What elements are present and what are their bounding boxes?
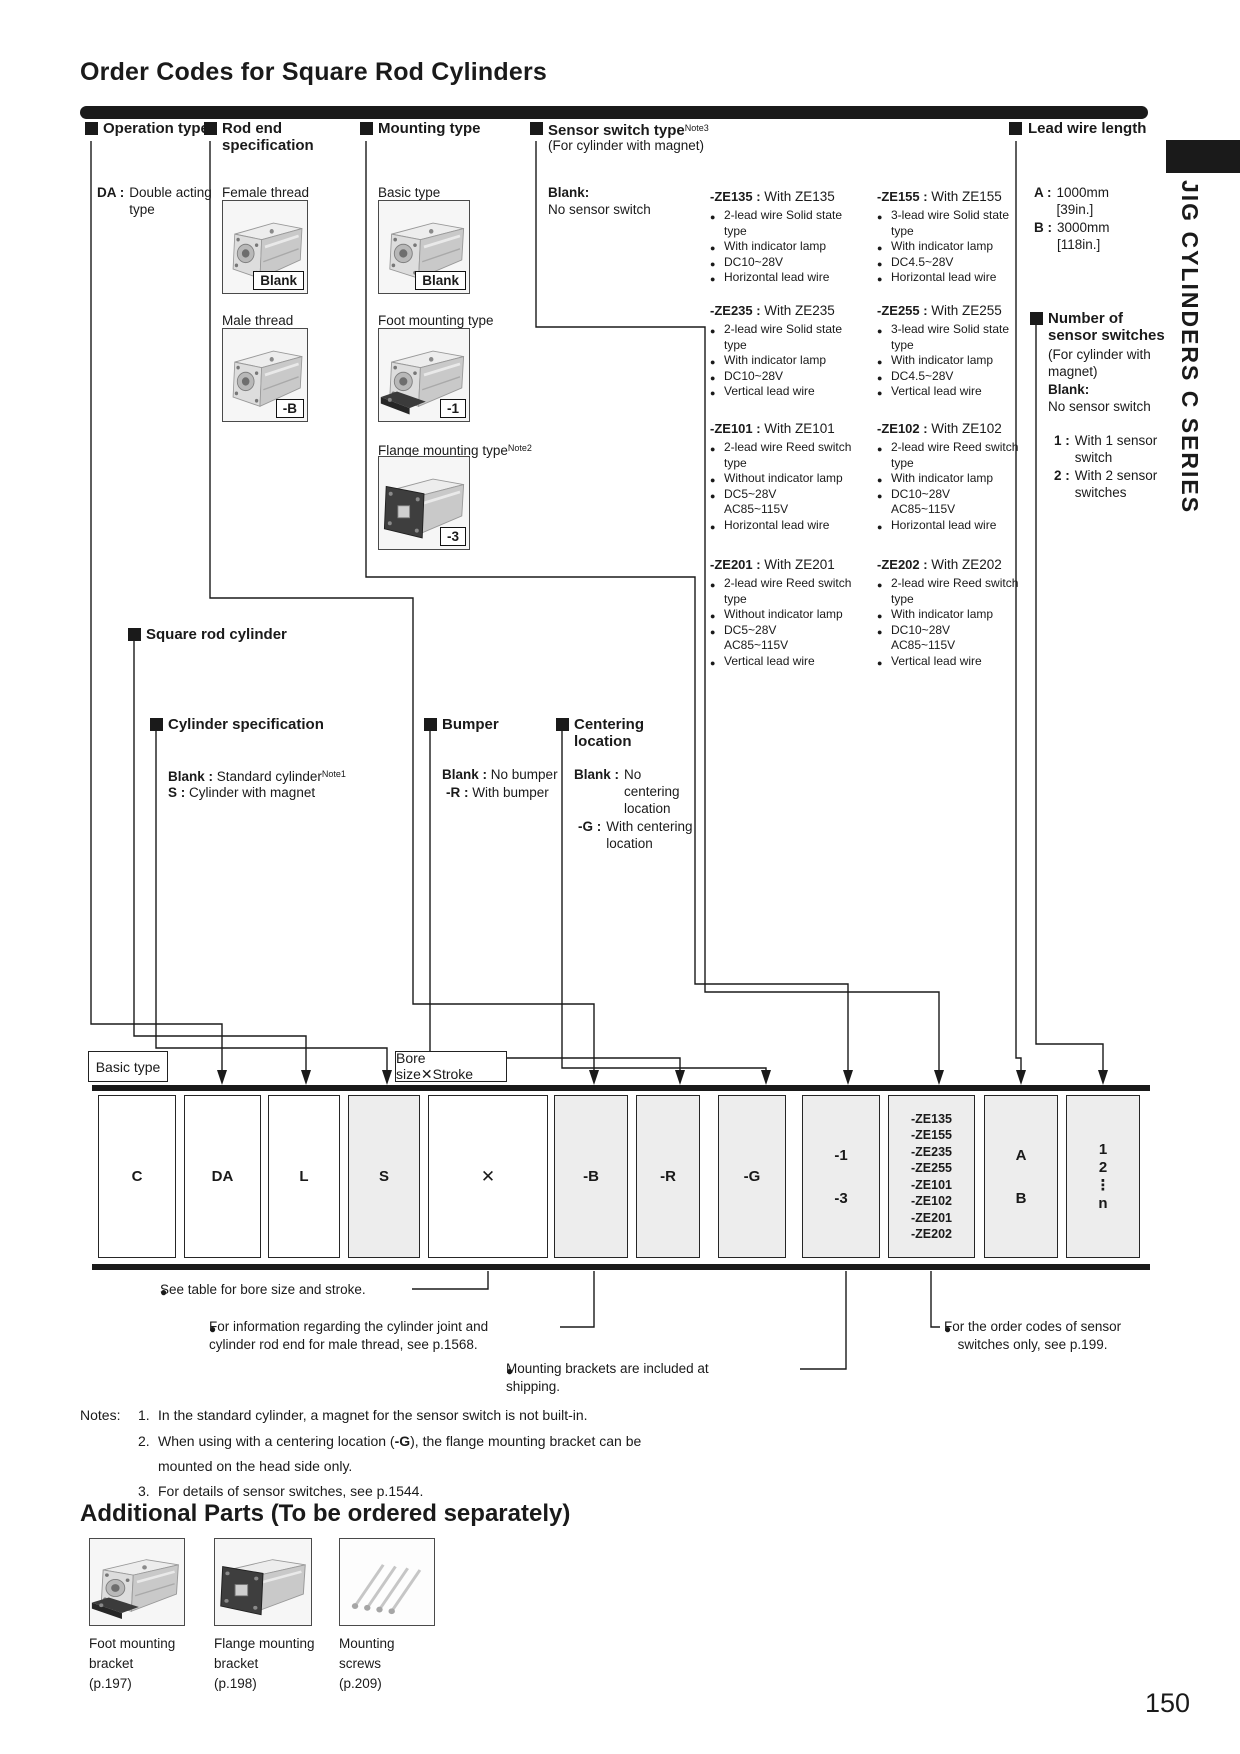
sensor-option-item: ●DC10~28V [710,255,870,271]
bullet-icon: ● [710,210,715,226]
sensor-option-item: ●3-lead wire Solid statetype [877,208,1037,239]
sensor-option-header: -ZE235 : With ZE235 [710,302,870,319]
sensor-option-item: ●With indicator lamp [710,239,870,255]
bullet-icon: ● [877,656,882,672]
sensor-option-item: ●3-lead wire Solid statetype [877,322,1037,353]
section-marker-bumper [424,718,437,731]
sensor-option-item: ●Vertical lead wire [710,654,870,670]
num-switches-option-1: 1 :With 1 sensor switch [1054,432,1167,466]
bumper-blank-option: Blank : No bumper [442,766,558,783]
order-cell-mounting: -1-3 [802,1095,880,1258]
section-title-lead-wire: Lead wire length [1028,120,1158,137]
section-title-mounting: Mounting type [378,120,508,137]
catalog-page: Order Codes for Square Rod Cylinders JIG… [0,0,1240,1754]
notes-line-1: Notes:1.In the standard cylinder, a magn… [80,1406,588,1424]
mounting-flange-note: Note2 [508,443,532,453]
sensor-option-item: ●Vertical lead wire [877,654,1037,670]
callout-sensor-order-codes: ● For the order codes of sensorswitches … [944,1318,1121,1354]
bullet-icon: ● [710,324,715,340]
code-label-female: Blank [253,271,304,290]
section-marker-sensor [530,122,543,135]
sensor-option-item: ●2-lead wire Reed switchtype [877,440,1037,471]
notes-line-2: 2.When using with a centering location (… [138,1432,641,1450]
bullet-icon: ● [710,625,715,641]
sensor-option-header: -ZE101 : With ZE101 [710,420,870,437]
num-switches-option-2: 2 :With 2 sensor switches [1054,467,1167,501]
num-switches-blank-label: Blank: [1048,381,1089,398]
section-marker-mounting [360,122,373,135]
section-title-rod-end: Rod end specification [222,120,332,154]
centering-g-option: -G :With centering location [578,818,694,852]
sensor-option-item: ●DC10~28V [710,369,870,385]
bullet-icon: ● [710,386,715,402]
section-title-bumper: Bumper [442,716,562,733]
sensor-blank-label: Blank: [548,184,589,201]
additional-part-caption: Foot mounting bracket(p.197) [89,1634,194,1694]
callout-mounting-brackets: ● Mounting brackets are included atshipp… [506,1360,709,1396]
notes-line-2b: mounted on the head side only. [158,1457,352,1475]
bullet-icon: ● [160,1283,167,1301]
bumper-r-option: -R : With bumper [446,784,549,801]
page-number: 150 [1100,1688,1190,1719]
sensor-option-ze101: -ZE101 : With ZE101 ●2-lead wire Reed sw… [710,420,870,533]
table-bottom-rule [92,1264,1150,1270]
additional-parts-title: Additional Parts (To be ordered separate… [80,1500,570,1528]
code-label-male: -B [276,399,304,418]
order-cell-square-rod: L [268,1095,340,1258]
photo-basic-mounting: Blank [378,200,470,294]
bullet-icon: ● [710,520,715,536]
sensor-option-header: -ZE135 : With ZE135 [710,188,870,205]
code-label-flange: -3 [440,527,466,546]
sensor-option-item: ●2-lead wire Solid statetype [710,208,870,239]
sensor-option-header: -ZE201 : With ZE201 [710,556,870,573]
sensor-option-header: -ZE255 : With ZE255 [877,302,1037,319]
sensor-option-ze135: -ZE135 : With ZE135 ●2-lead wire Solid s… [710,188,870,286]
operation-option-da: DA : Double acting type [97,184,225,218]
section-marker-centering [556,718,569,731]
lead-wire-option-a: A : 1000mm[39in.] [1034,184,1109,218]
sensor-option-item: ●Horizontal lead wire [877,518,1037,534]
bore-stroke-label: Bore size✕Stroke [395,1051,507,1082]
sensor-option-item: ●DC10~28VAC85~115V [877,623,1037,654]
sensor-option-ze102: -ZE102 : With ZE102 ●2-lead wire Reed sw… [877,420,1037,533]
rod-end-male-label: Male thread [222,312,293,329]
page-title: Order Codes for Square Rod Cylinders [80,58,547,87]
section-title-cyl-spec: Cylinder specification [168,716,388,733]
sensor-title-note: Note3 [685,123,709,133]
sensor-option-header: -ZE155 : With ZE155 [877,188,1037,205]
num-switches-blank-desc: No sensor switch [1048,398,1151,415]
sensor-option-item: ●DC5~28VAC85~115V [710,487,870,518]
notes-line-3: 3.For details of sensor switches, see p.… [138,1482,423,1500]
rod-end-female-label: Female thread [222,184,309,201]
bullet-icon: ● [877,625,882,641]
order-cell-series: C [98,1095,176,1258]
sensor-option-item: ●Horizontal lead wire [877,270,1037,286]
bullet-icon: ● [877,386,882,402]
additional-part-caption: Mounting screws(p.209) [339,1634,411,1694]
bullet-icon: ● [710,656,715,672]
bullet-icon: ● [877,324,882,340]
bullet-icon: ● [877,442,882,458]
bullet-icon: ● [506,1362,513,1380]
code-label-basic: Blank [415,271,466,290]
table-top-rule [92,1085,1150,1091]
bullet-icon: ● [877,272,882,288]
photo-mounting-screws [339,1538,435,1626]
order-cell-sensor-switch: -ZE135-ZE155 -ZE235-ZE255 -ZE101-ZE102 -… [888,1095,975,1258]
series-name-vertical: JIG CYLINDERS C SERIES [1176,180,1203,514]
sensor-option-header: -ZE202 : With ZE202 [877,556,1037,573]
photo-male-thread-cylinder: -B [222,328,308,422]
centering-blank-option: Blank :No centering location [574,766,688,817]
operation-da-code: DA : [97,184,124,218]
bullet-icon: ● [710,578,715,594]
sensor-option-ze201: -ZE201 : With ZE201 ●2-lead wire Reed sw… [710,556,870,669]
sensor-option-item: ●DC5~28VAC85~115V [710,623,870,654]
sensor-option-ze235: -ZE235 : With ZE235 ●2-lead wire Solid s… [710,302,870,400]
photo-flange-mounting: -3 [378,456,470,550]
bullet-icon: ● [944,1320,951,1338]
additional-part-caption: Flange mounting bracket(p.198) [214,1634,319,1694]
order-cell-bumper: -R [636,1095,700,1258]
series-index-tab [1166,140,1240,173]
order-cell-bore-stroke: ✕ [428,1095,548,1258]
sensor-option-header: -ZE102 : With ZE102 [877,420,1037,437]
sensor-option-item: ●Vertical lead wire [710,384,870,400]
sensor-option-ze202: -ZE202 : With ZE202 ●2-lead wire Reed sw… [877,556,1037,669]
callout-bore-stroke: ●See table for bore size and stroke. [160,1281,366,1299]
photo-foot-mounting: -1 [378,328,470,422]
section-marker-operation [85,122,98,135]
order-cell-spec: S [348,1095,420,1258]
sensor-option-item: ●DC4.5~28V [877,255,1037,271]
sensor-option-item: ●2-lead wire Reed switchtype [710,576,870,607]
lead-wire-option-b: B : 3000mm[118in.] [1034,219,1110,253]
order-cell-num-switches: 12 ⋮n [1066,1095,1140,1258]
bullet-icon: ● [877,578,882,594]
sensor-subtitle: (For cylinder with magnet) [548,137,704,154]
section-title-square-rod: Square rod cylinder [146,626,366,643]
sensor-option-item: ●With indicator lamp [877,471,1037,487]
bullet-icon: ● [209,1320,216,1338]
bullet-icon: ● [877,520,882,536]
bullet-icon: ● [710,489,715,505]
cyl-spec-s-option: S : Cylinder with magnet [168,784,315,801]
sensor-option-item: ●Without indicator lamp [710,607,870,623]
operation-da-desc: Double acting type [129,184,225,218]
num-switches-subtitle: (For cylinder with magnet) [1048,346,1168,380]
photo-flange-mounting-bracket [214,1538,312,1626]
cyl-spec-blank-option: Blank : Standard cylinderNote1 [168,766,346,785]
section-marker-lead-wire [1009,122,1022,135]
sensor-option-ze255: -ZE255 : With ZE255 ●3-lead wire Solid s… [877,302,1037,400]
section-marker-cyl-spec [150,718,163,731]
bullet-icon: ● [710,272,715,288]
section-marker-rod-end [204,122,217,135]
section-marker-square-rod [128,628,141,641]
mounting-basic-label: Basic type [378,184,440,201]
sensor-option-item: ●With indicator lamp [877,607,1037,623]
sensor-option-item: ●Vertical lead wire [877,384,1037,400]
mounting-foot-label: Foot mounting type [378,312,494,329]
sensor-option-item: ●Horizontal lead wire [710,270,870,286]
title-rule [80,106,1148,119]
sensor-option-item: ●With indicator lamp [877,239,1037,255]
sensor-option-item: ●With indicator lamp [710,353,870,369]
order-cell-lead-wire: AB [984,1095,1058,1258]
code-label-foot: -1 [440,399,466,418]
bullet-icon: ● [877,210,882,226]
sensor-option-item: ●Without indicator lamp [710,471,870,487]
sensor-option-item: ●2-lead wire Reed switchtype [710,440,870,471]
bullet-icon: ● [710,442,715,458]
bullet-icon: ● [877,489,882,505]
sensor-option-ze155: -ZE155 : With ZE155 ●3-lead wire Solid s… [877,188,1037,286]
sensor-option-item: ●DC4.5~28V [877,369,1037,385]
sensor-option-item: ●With indicator lamp [877,353,1037,369]
bracket-illustration [90,1539,184,1625]
section-marker-num-switches [1030,312,1043,325]
callout-cylinder-joint: ● For information regarding the cylinder… [209,1318,488,1354]
photo-foot-mounting-bracket [89,1538,185,1626]
sensor-option-item: ●2-lead wire Solid statetype [710,322,870,353]
screws-illustration [340,1539,434,1625]
sensor-option-item: ●DC10~28VAC85~115V [877,487,1037,518]
section-title-centering: Centering location [574,716,664,750]
order-cell-rod-end: -B [554,1095,628,1258]
basic-type-label: Basic type [88,1051,168,1082]
bracket-illustration [215,1539,311,1625]
order-cell-operation: DA [184,1095,261,1258]
order-cell-centering: -G [718,1095,786,1258]
photo-female-thread-cylinder: Blank [222,200,308,294]
section-title-num-switches: Number of sensor switches [1048,310,1168,344]
sensor-blank-desc: No sensor switch [548,201,651,218]
sensor-option-item: ●2-lead wire Reed switchtype [877,576,1037,607]
sensor-option-item: ●Horizontal lead wire [710,518,870,534]
